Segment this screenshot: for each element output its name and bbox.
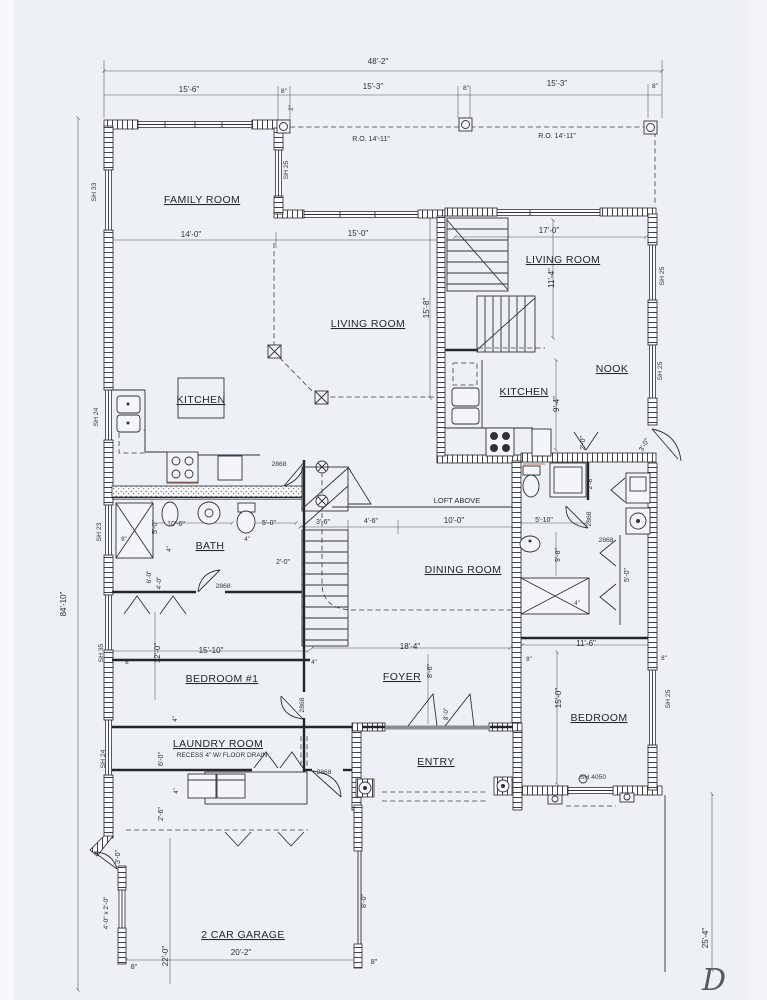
dimension-label: 11'-6" xyxy=(576,639,596,648)
door-tag: 2868 xyxy=(271,461,286,468)
room-label: FAMILY ROOM xyxy=(164,194,240,206)
floor-plan: FAMILY ROOMLIVING ROOMLIVING ROOMKITCHEN… xyxy=(0,0,767,1000)
dimension-label: 14'-0" xyxy=(181,230,202,239)
dimension-label: 15'-6" xyxy=(179,85,200,94)
dimension-label: 8" xyxy=(463,85,470,92)
dimension-label: 4" xyxy=(574,601,579,607)
dimension-label: 8" xyxy=(371,959,378,966)
dimension-label: 8" xyxy=(661,656,666,662)
dimension-label: 4'-6" xyxy=(364,518,378,525)
dimension-label: 6'-0" xyxy=(146,570,153,584)
dimension-label: 6'-0" xyxy=(158,752,165,766)
dimension-label: 3'-6" xyxy=(316,519,330,526)
dimension-label: 11'-4" xyxy=(547,268,556,288)
note-label: RECESS 4" W/ FLOOR DRAIN xyxy=(177,752,268,759)
dimension-label: 20'-2" xyxy=(231,948,252,957)
room-label: BATH xyxy=(196,540,225,552)
dimension-label: 4" xyxy=(167,546,173,551)
window-tag: SH 25 xyxy=(657,361,664,380)
dimension-label: 2'-8" xyxy=(587,476,594,490)
dimension-label: 15'-0" xyxy=(554,688,563,709)
dimension-label: 4'-0" xyxy=(156,576,163,590)
dimension-label: LOFT ABOVE xyxy=(434,496,481,505)
dimension-label: 4" xyxy=(173,716,179,721)
window-tag: SH 24 xyxy=(100,749,107,768)
dimension-label: 2'-6" xyxy=(158,807,165,821)
room-label: KITCHEN xyxy=(177,394,226,406)
dimension-label: 5'-0" xyxy=(624,568,631,582)
dimension-label: 4" xyxy=(174,788,180,793)
scanned-floor-plan-page: FAMILY ROOMLIVING ROOMLIVING ROOMKITCHEN… xyxy=(0,0,767,1000)
dimension-label: 10'-0" xyxy=(444,516,465,525)
dimension-label: 4" xyxy=(244,537,249,543)
door-tag: 2868 xyxy=(215,583,230,590)
door-tag: 2868 xyxy=(299,697,306,712)
note-label: D xyxy=(701,963,726,998)
room-label: 2 CAR GARAGE xyxy=(201,929,285,941)
dimension-label: 8'-0" xyxy=(444,708,450,720)
room-label: DINING ROOM xyxy=(425,564,502,576)
dimension-label: 2" xyxy=(289,105,295,110)
room-label: BEDROOM #1 xyxy=(186,673,259,685)
window-tag: SH 24 xyxy=(93,407,100,426)
dimension-label: 84'-10" xyxy=(59,591,68,616)
dimension-label: R.O. 14'-11" xyxy=(538,133,576,140)
dimension-label: 9'-4" xyxy=(552,396,561,412)
dimension-label: 25'-4" xyxy=(701,928,710,949)
window-tag: SH 4050 xyxy=(580,774,607,781)
room-label: LIVING ROOM xyxy=(526,254,600,266)
room-label: LAUNDRY ROOM xyxy=(173,738,263,750)
room-label: ENTRY xyxy=(417,756,454,768)
dimension-label: 22'-0" xyxy=(161,946,170,967)
dimension-label: 10'-6" xyxy=(167,521,185,528)
dimension-label: 8" xyxy=(652,83,659,90)
dimension-label: 48'-2" xyxy=(368,57,389,66)
window-tag: SH 33 xyxy=(91,182,98,201)
window-tag: SH 25 xyxy=(665,689,672,708)
dimension-label: 8" xyxy=(281,88,288,95)
dimension-label: 15'-8" xyxy=(422,298,431,319)
dimension-label: 8'-6" xyxy=(427,664,434,678)
door-tag: 2868 xyxy=(586,511,593,526)
room-label: FOYER xyxy=(383,671,421,683)
dimension-label: 8" xyxy=(125,660,130,666)
window-tag: SH 25 xyxy=(659,266,666,285)
dimension-label: 12'-0" xyxy=(153,643,162,664)
dimension-label: 17'-0" xyxy=(539,226,560,235)
dimension-label: 15'-10" xyxy=(199,646,224,655)
dimension-label: 2'-0" xyxy=(276,559,290,566)
dimension-label: 8" xyxy=(121,537,126,543)
dimension-label: 18'-4" xyxy=(400,642,421,651)
dimension-label: 8'-0" xyxy=(361,894,368,908)
dimension-label: 8" xyxy=(526,657,531,663)
dimension-label: 15'-0" xyxy=(348,229,369,238)
window-tag: SH 35 xyxy=(98,643,105,662)
dimension-label: 2'-0" xyxy=(580,436,587,450)
dimension-label: 5'-0" xyxy=(152,520,159,534)
window-tag: SH 25 xyxy=(283,160,290,179)
dimension-label: 4" xyxy=(311,660,316,666)
dimension-label: R.O. 14'-11" xyxy=(352,136,390,143)
door-tag: 2868 xyxy=(316,769,331,776)
dimension-label: 5'-0" xyxy=(262,520,276,527)
room-label: BEDROOM xyxy=(570,712,627,724)
dimension-label: 4'-0" x 2'-0" xyxy=(103,896,110,929)
room-label: KITCHEN xyxy=(500,386,549,398)
door-tag: 2868 xyxy=(598,537,613,544)
dimension-label: 9'-8" xyxy=(555,548,562,562)
dimension-label: 8" xyxy=(131,964,138,971)
room-label: LIVING ROOM xyxy=(331,318,405,330)
window-tag: SH 23 xyxy=(96,522,103,541)
dimension-label: 3'-0" xyxy=(115,850,122,864)
dimension-label: 5'-10" xyxy=(535,517,553,524)
room-label: NOOK xyxy=(596,363,629,375)
dimension-label: 15'-3" xyxy=(363,82,384,91)
dimension-label: 15'-3" xyxy=(547,79,568,88)
